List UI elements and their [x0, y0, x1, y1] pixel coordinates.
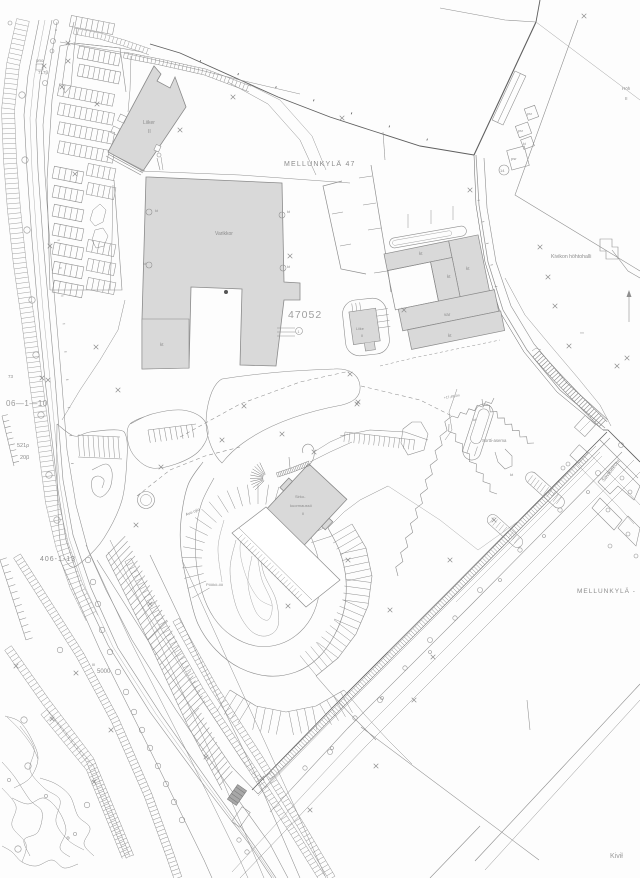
svg-text:1: 1	[298, 330, 300, 334]
svg-text:14: 14	[500, 168, 505, 173]
svg-text:××: ××	[580, 331, 584, 335]
svg-text:kt: kt	[523, 142, 526, 146]
svg-text:psr: psr	[511, 156, 517, 161]
svg-text:II: II	[361, 334, 363, 338]
svg-text:Liiker: Liiker	[143, 120, 155, 126]
svg-text:II: II	[625, 96, 628, 101]
svg-text:20β: 20β	[20, 455, 29, 461]
svg-text:var: var	[444, 312, 451, 317]
svg-text:MELLUNKYLÄ 47: MELLUNKYLÄ 47	[284, 160, 356, 168]
svg-text:Höh: Höh	[622, 86, 631, 91]
svg-text:kuormaussö: kuormaussö	[290, 503, 313, 508]
svg-text:III: III	[92, 662, 95, 667]
svg-text:Sirko-: Sirko-	[295, 494, 306, 499]
svg-text:II: II	[302, 511, 304, 516]
svg-text:Pöökö-öö: Pöökö-öö	[206, 582, 224, 587]
svg-text:717β: 717β	[38, 70, 49, 75]
svg-text:psr: psr	[527, 112, 533, 116]
svg-text:5000: 5000	[97, 669, 111, 675]
svg-text:406-1-13: 406-1-13	[40, 556, 76, 563]
svg-text:Sortti-asema: Sortti-asema	[482, 438, 507, 443]
svg-text:47052: 47052	[288, 309, 322, 321]
svg-text:Kivił: Kivił	[610, 853, 623, 860]
svg-text:06—1—10: 06—1—10	[6, 399, 48, 408]
svg-text:psr: psr	[518, 129, 524, 133]
svg-text:Varikkor: Varikkor	[215, 231, 233, 237]
svg-text:Kivikon höhtohalli: Kivikon höhtohalli	[551, 254, 591, 260]
svg-text:521ρ: 521ρ	[17, 443, 29, 449]
svg-text:pno: pno	[36, 58, 44, 63]
svg-text:Liike: Liike	[356, 327, 364, 331]
svg-text:II: II	[148, 129, 151, 135]
svg-text:MELLUNKYLÄ -: MELLUNKYLÄ -	[577, 587, 636, 595]
svg-text:73: 73	[8, 374, 14, 379]
